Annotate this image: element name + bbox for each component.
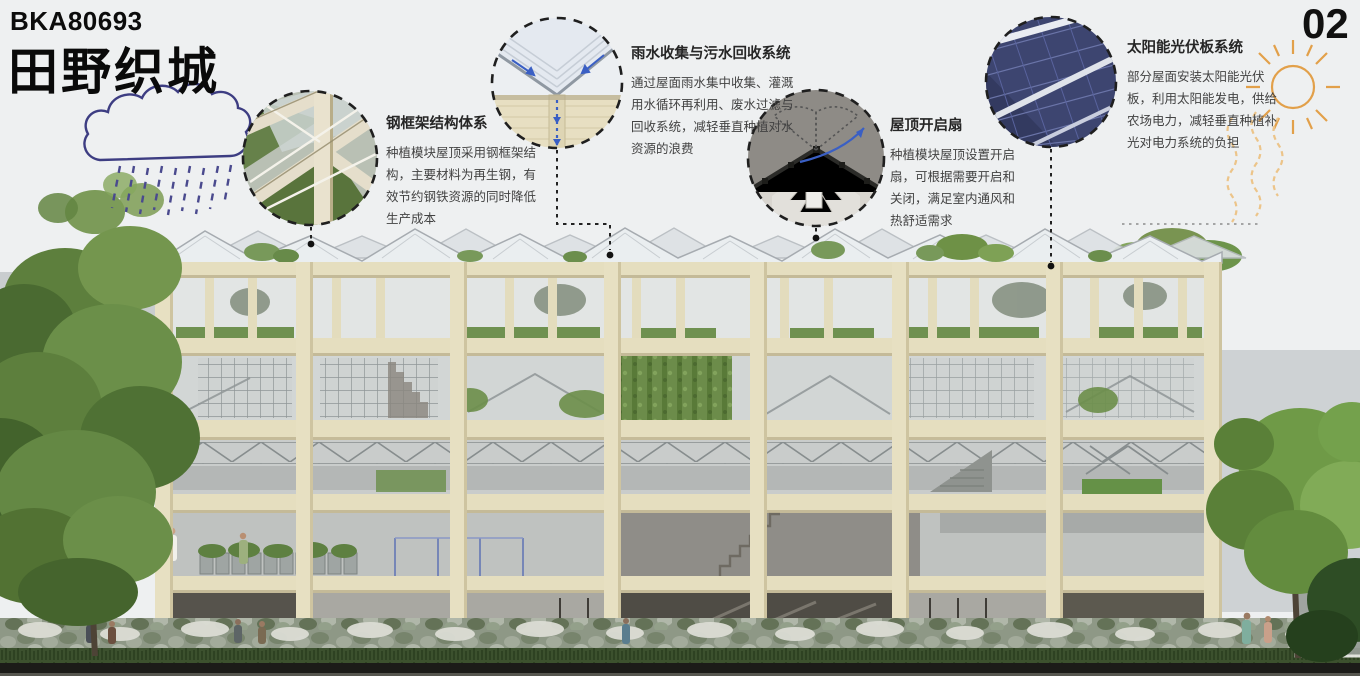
callout-body: 通过屋面雨水集中收集、灌溉用水循环再利用、废水过滤与回收系统，减轻垂直种植对水资… (631, 72, 795, 160)
page-title: 田野织城 (8, 32, 220, 104)
callout-title: 雨水收集与污水回收系统 (631, 42, 795, 63)
callout-title: 钢框架结构体系 (386, 112, 540, 133)
page-number: 02 (1302, 0, 1349, 48)
callout-body: 种植模块屋顶设置开启扇，可根据需要开启和关闭，满足室内通风和热舒适需求 (890, 144, 1022, 232)
callout-rainwater: 雨水收集与污水回收系统 通过屋面雨水集中收集、灌溉用水循环再利用、废水过滤与回收… (631, 42, 795, 160)
callout-body: 种植模块屋顶采用钢框架结构，主要材料为再生钢，有效节约钢铁资源的同时降低生产成本 (386, 142, 540, 230)
callout-title: 太阳能光伏板系统 (1127, 36, 1283, 57)
callout-roof-vent: 屋顶开启扇 种植模块屋顶设置开启扇，可根据需要开启和关闭，满足室内通风和热舒适需… (890, 114, 1022, 232)
callout-steel-frame: 钢框架结构体系 种植模块屋顶采用钢框架结构，主要材料为再生钢，有效节约钢铁资源的… (386, 112, 540, 230)
callout-body: 部分屋面安装太阳能光伏板，利用太阳能发电，供给农场电力，减轻垂直种植补光对电力系… (1127, 66, 1283, 154)
callout-title: 屋顶开启扇 (890, 114, 1022, 135)
ground-vegetation (0, 618, 1360, 676)
callout-solar: 太阳能光伏板系统 部分屋面安装太阳能光伏板，利用太阳能发电，供给农场电力，减轻垂… (1127, 36, 1283, 154)
building-facade (155, 262, 1222, 660)
